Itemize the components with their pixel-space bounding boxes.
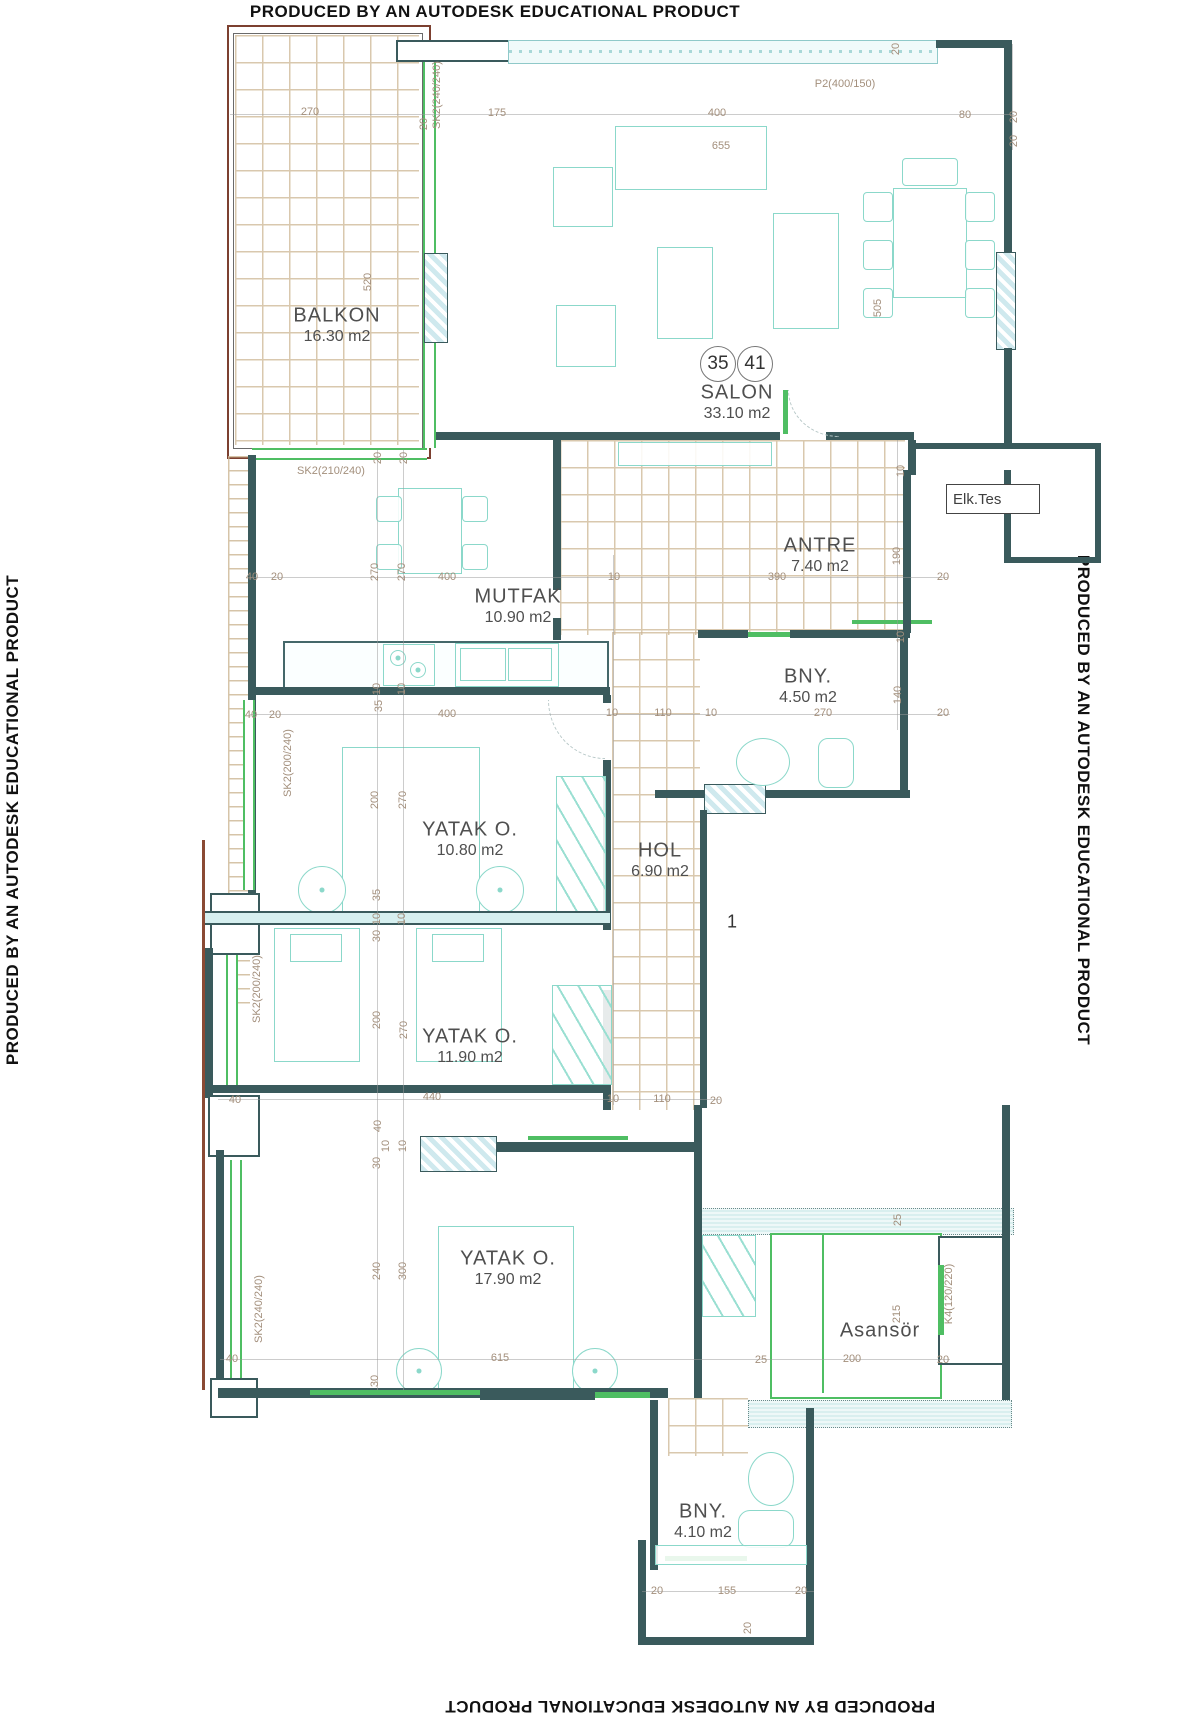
top-title: PRODUCED BY AN AUTODESK EDUCATIONAL PROD… bbox=[250, 2, 740, 22]
room-name-label: BALKON bbox=[293, 305, 380, 328]
dimension-label: 10 bbox=[371, 683, 383, 695]
dimension-label: 140 bbox=[892, 686, 904, 704]
bottom-title: PRODUCED BY AN AUTODESK EDUCATIONAL PROD… bbox=[445, 1696, 935, 1716]
dimension-label: 300 bbox=[397, 1262, 409, 1280]
dimension-label: 20 bbox=[937, 571, 949, 583]
dimension-label: 20 bbox=[418, 118, 430, 130]
dimension-label: 35 bbox=[373, 700, 385, 712]
balcony-tile-floor bbox=[235, 35, 419, 445]
chair-icon bbox=[965, 240, 995, 270]
wall-segment bbox=[216, 1150, 224, 1382]
unit-number-circle: 35 bbox=[700, 346, 736, 382]
dimension-label: SK2(240/240) bbox=[253, 1275, 265, 1343]
hatched-column-salon-left bbox=[424, 253, 448, 343]
dimension-label: SK2(200/240) bbox=[251, 955, 263, 1023]
dimension-label: 520 bbox=[362, 273, 374, 291]
dimension-label: 655 bbox=[712, 140, 730, 152]
dimension-label: 505 bbox=[872, 299, 884, 317]
wall-segment bbox=[553, 618, 561, 640]
dimension-label: 155 bbox=[718, 1585, 736, 1597]
kitchen-table bbox=[398, 488, 462, 574]
wall-segment bbox=[936, 40, 1012, 48]
left-title: PRODUCED BY AN AUTODESK EDUCATIONAL PROD… bbox=[3, 575, 23, 1065]
wardrobe-icon bbox=[702, 1235, 756, 1317]
dimension-label: 40 bbox=[245, 709, 257, 721]
dining-table-icon bbox=[893, 188, 967, 298]
dimension-label: 10 bbox=[380, 1140, 392, 1152]
dimension-line bbox=[250, 577, 948, 578]
bathroom-sink-icon bbox=[748, 1452, 794, 1506]
chair-icon bbox=[863, 240, 893, 270]
nightstand-lamp-icon bbox=[298, 866, 346, 914]
room-area-label: 4.50 m2 bbox=[779, 689, 837, 707]
room-area-label: 17.90 m2 bbox=[475, 1271, 542, 1289]
dimension-label: SK2(200/240) bbox=[282, 729, 294, 797]
wall-segment bbox=[698, 630, 748, 638]
dimension-label: 10 bbox=[396, 913, 408, 925]
dimension-label: 270 bbox=[369, 563, 381, 581]
dimension-line bbox=[218, 1099, 720, 1100]
dimension-label: 20 bbox=[651, 1585, 663, 1597]
room-name-label: YATAK O. bbox=[422, 1026, 518, 1049]
dimension-label: 20 bbox=[1008, 135, 1020, 147]
room-area-label: 4.10 m2 bbox=[674, 1524, 732, 1542]
wall-segment bbox=[638, 1540, 646, 1645]
chair-icon bbox=[965, 288, 995, 318]
wall-segment bbox=[1010, 557, 1101, 563]
wall-segment bbox=[553, 440, 561, 590]
dimension-label: 190 bbox=[891, 547, 903, 565]
chair-icon bbox=[863, 192, 893, 222]
dimension-label: 400 bbox=[708, 107, 726, 119]
wall-segment bbox=[911, 443, 1101, 449]
wall-segment bbox=[638, 1637, 814, 1645]
dimension-label: 10 bbox=[397, 1140, 409, 1152]
dimension-label: K4(120/220) bbox=[943, 1264, 955, 1325]
dimension-label: 200 bbox=[369, 791, 381, 809]
dimension-label: 390 bbox=[768, 571, 786, 583]
dimension-label: 270 bbox=[301, 106, 319, 118]
armchair-icon bbox=[553, 167, 613, 227]
bathroom-sink-icon bbox=[736, 738, 790, 786]
toilet-icon bbox=[738, 1510, 794, 1548]
kitchen-counter bbox=[283, 641, 609, 691]
dimension-label: 40 bbox=[229, 1094, 241, 1106]
pillow-icon bbox=[432, 934, 484, 962]
salon-door-swing-arc bbox=[788, 390, 839, 437]
sink-basin bbox=[460, 648, 506, 681]
wall-segment bbox=[694, 1208, 702, 1398]
room-area-label: 10.80 m2 bbox=[437, 842, 504, 860]
dimension-line bbox=[613, 555, 614, 1105]
dimension-label: 10 bbox=[895, 631, 907, 643]
elevator-bottom-wall bbox=[748, 1400, 1012, 1428]
room-area-label: 11.90 m2 bbox=[437, 1049, 503, 1067]
wall-segment bbox=[213, 1085, 610, 1093]
hatched-column-hol bbox=[704, 784, 766, 814]
left-window-2 bbox=[226, 955, 238, 1093]
wall-segment bbox=[700, 810, 707, 1108]
room-name-label: Asansör bbox=[840, 1320, 920, 1343]
dimension-label: 615 bbox=[491, 1352, 509, 1364]
dimension-label: P2(400/150) bbox=[815, 78, 876, 90]
left-window-3 bbox=[230, 1160, 242, 1382]
dimension-label: 25 bbox=[892, 1214, 904, 1226]
dimension-label: 40 bbox=[372, 1120, 384, 1132]
dimension-label: 400 bbox=[438, 571, 456, 583]
dimension-label: 10 bbox=[371, 913, 383, 925]
dimension-label: 10 bbox=[396, 683, 408, 695]
wall-segment bbox=[1004, 348, 1012, 448]
dimension-label: 20 bbox=[795, 1585, 807, 1597]
room-name-label: BNY. bbox=[784, 666, 832, 689]
salon-top-door-frame bbox=[396, 40, 512, 62]
wall-corner-block bbox=[210, 1378, 258, 1418]
dimension-label: 20 bbox=[1008, 111, 1020, 123]
room-area-label: 7.40 m2 bbox=[791, 558, 849, 576]
coffee-table-icon bbox=[657, 247, 713, 339]
bathroom-door-leaf bbox=[748, 632, 790, 637]
dimension-label: 20 bbox=[271, 571, 283, 583]
dimension-label: 25 bbox=[755, 1354, 767, 1366]
window-sill-line bbox=[528, 1136, 628, 1140]
dimension-label: 20 bbox=[742, 1622, 754, 1634]
wall-segment bbox=[436, 432, 780, 440]
dimension-label: 110 bbox=[654, 707, 672, 719]
wall-segment bbox=[806, 1540, 814, 1645]
chair-icon bbox=[376, 496, 402, 522]
salon-door-leaf bbox=[783, 390, 788, 434]
dimension-label: 200 bbox=[371, 1011, 383, 1029]
unit-number-circle: 41 bbox=[737, 346, 773, 382]
dimension-label: 10 bbox=[895, 465, 907, 477]
wall-segment bbox=[1095, 443, 1101, 563]
room-name-label: SALON bbox=[701, 382, 774, 405]
elk-tes-label: Elk.Tes bbox=[953, 491, 1001, 508]
dimension-label: 200 bbox=[843, 1353, 861, 1365]
room-name-label: HOL bbox=[638, 840, 682, 863]
dimension-label: 270 bbox=[814, 707, 832, 719]
hatched-column-salon-right bbox=[996, 252, 1016, 350]
wall-segment bbox=[655, 790, 910, 798]
dimension-label: 20 bbox=[710, 1095, 722, 1107]
dimension-label: 20 bbox=[372, 452, 384, 464]
room-area-label: 10.90 m2 bbox=[485, 609, 552, 627]
dimension-label: 270 bbox=[397, 791, 409, 809]
floor-plan-page: PRODUCED BY AN AUTODESK EDUCATIONAL PROD… bbox=[0, 0, 1200, 1721]
wall-segment bbox=[903, 470, 911, 633]
dimension-label: 270 bbox=[398, 1021, 410, 1039]
dimension-label: 20 bbox=[937, 707, 949, 719]
nightstand-lamp-icon bbox=[476, 866, 524, 914]
room-name-label: YATAK O. bbox=[422, 819, 518, 842]
room-name-label: YATAK O. bbox=[460, 1248, 556, 1271]
dimension-label: 10 bbox=[608, 571, 620, 583]
dimension-line bbox=[230, 114, 1014, 115]
chair-icon bbox=[462, 496, 488, 522]
entry-door-line bbox=[595, 1392, 650, 1398]
dimension-line bbox=[250, 714, 950, 715]
dimension-label: 215 bbox=[891, 1305, 903, 1323]
dimension-label: SK2(240/240) bbox=[431, 61, 443, 129]
room-area-label: 6.90 m2 bbox=[631, 863, 689, 881]
pillow-icon bbox=[290, 934, 342, 962]
dimension-label: SK2(210/240) bbox=[297, 465, 365, 477]
chair-icon bbox=[965, 192, 995, 222]
wardrobe-icon bbox=[556, 776, 606, 912]
wall-segment bbox=[694, 1105, 702, 1208]
chair-icon bbox=[902, 158, 958, 186]
dimension-label: 20 bbox=[937, 1354, 949, 1366]
bathroom-counter-line bbox=[852, 620, 932, 624]
left-window-1 bbox=[243, 700, 255, 890]
dimension-label: 270 bbox=[396, 563, 408, 581]
chair-icon bbox=[462, 544, 488, 570]
sofa-three-seat-icon bbox=[615, 126, 767, 190]
elk-tes-box: Elk.Tes bbox=[946, 484, 1040, 514]
dimension-label: 20 bbox=[890, 43, 902, 55]
dimension-label: 400 bbox=[438, 708, 456, 720]
dimension-label: 30 bbox=[371, 930, 383, 942]
toilet-icon bbox=[818, 738, 854, 788]
stove-burner-icon bbox=[410, 662, 426, 678]
dimension-label: 240 bbox=[371, 1262, 383, 1280]
wall-segment bbox=[205, 948, 213, 1098]
dimension-label: 440 bbox=[423, 1091, 441, 1103]
entry-step-icon bbox=[655, 1545, 807, 1565]
bedroom-door-swing-arc bbox=[548, 700, 605, 759]
right-title: PRODUCED BY AN AUTODESK EDUCATIONAL PROD… bbox=[1073, 555, 1093, 1045]
wall-segment bbox=[790, 630, 910, 638]
room-name-label: MUTFAK bbox=[474, 586, 561, 609]
dimension-label: 20 bbox=[398, 452, 410, 464]
sofa-two-seat-icon bbox=[773, 213, 839, 329]
wall-segment bbox=[248, 687, 610, 695]
stove-icon bbox=[383, 644, 435, 686]
dimension-label: 40 bbox=[246, 571, 258, 583]
dimension-label: 10 bbox=[607, 1093, 619, 1105]
bedroom-window-line bbox=[310, 1390, 480, 1395]
dimension-label: 30 bbox=[371, 1157, 383, 1169]
dimension-label: 30 bbox=[369, 1375, 381, 1387]
salon-top-window bbox=[508, 40, 938, 64]
dimension-line bbox=[220, 1359, 950, 1360]
wall-segment bbox=[826, 432, 914, 440]
armchair-icon bbox=[556, 305, 616, 367]
hatched-column-bedroom bbox=[420, 1136, 497, 1172]
antre-console-icon bbox=[618, 442, 772, 466]
dimension-label: 175 bbox=[488, 107, 506, 119]
room-name-label: BNY. bbox=[679, 1501, 727, 1524]
entry-tile-patch bbox=[668, 1398, 748, 1456]
elevator-top-wall bbox=[700, 1208, 1014, 1235]
dimension-label: 80 bbox=[959, 109, 971, 121]
sink-basin bbox=[508, 648, 552, 681]
wall-segment bbox=[1002, 1105, 1010, 1405]
room-area-label: 16.30 m2 bbox=[304, 328, 371, 346]
room-area-label: 33.10 m2 bbox=[704, 405, 771, 423]
elevator-divider-line bbox=[822, 1235, 824, 1393]
dimension-label: 35 bbox=[371, 889, 383, 901]
dimension-label: 10 bbox=[606, 707, 618, 719]
dimension-label: 110 bbox=[653, 1093, 671, 1105]
dimension-label: 40 bbox=[226, 1353, 238, 1365]
dimension-label: 10 bbox=[705, 707, 717, 719]
wardrobe-icon bbox=[552, 985, 612, 1085]
wall-segment bbox=[480, 1392, 595, 1400]
dimension-label: 20 bbox=[269, 709, 281, 721]
room-name-label: ANTRE bbox=[784, 535, 857, 558]
elevator-shaft bbox=[770, 1233, 942, 1399]
hol-number-label: 1 bbox=[727, 912, 737, 933]
